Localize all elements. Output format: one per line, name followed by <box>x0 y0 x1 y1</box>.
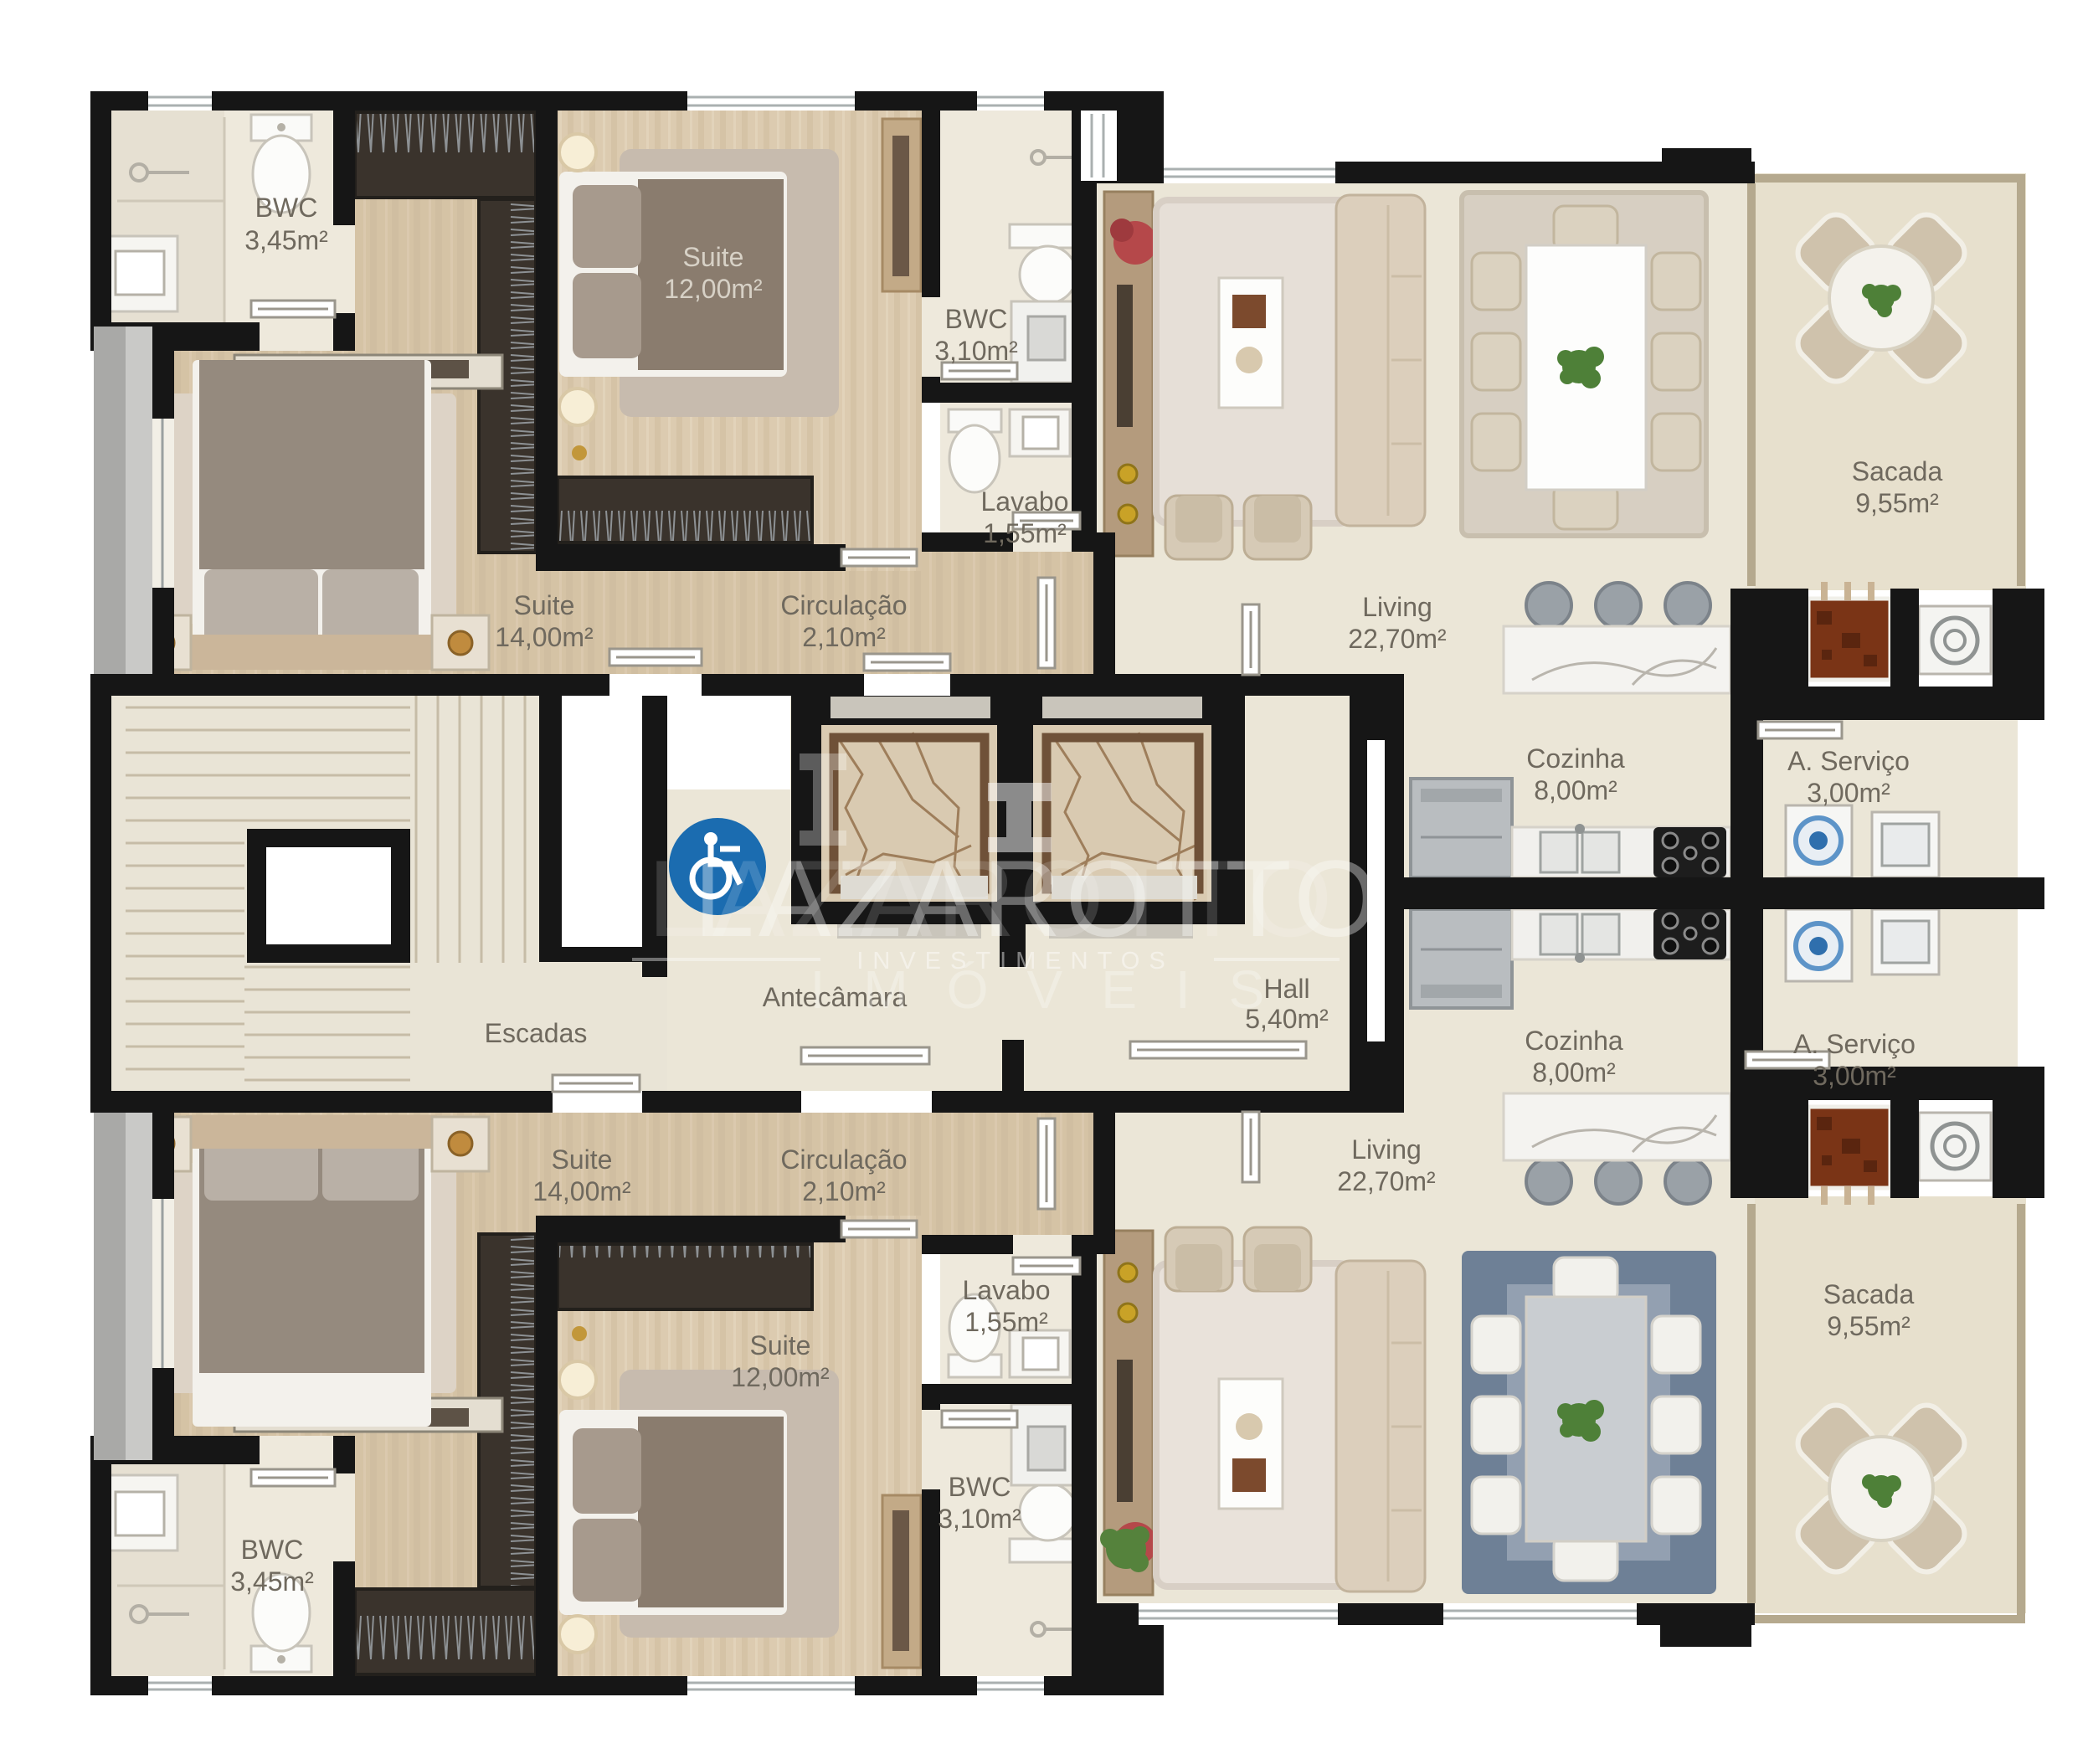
svg-text:Living: Living <box>1362 592 1432 622</box>
svg-text:8,00m²: 8,00m² <box>1532 1057 1616 1088</box>
svg-text:3,45m²: 3,45m² <box>244 225 328 255</box>
svg-text:BWC: BWC <box>949 1472 1011 1502</box>
svg-text:Suite: Suite <box>552 1144 613 1175</box>
svg-text:IMÓVEIS: IMÓVEIS <box>810 959 1304 1020</box>
svg-text:A. Serviço: A. Serviço <box>1787 746 1910 776</box>
svg-text:Circulação: Circulação <box>780 1144 907 1175</box>
svg-text:Lavabo: Lavabo <box>963 1275 1051 1305</box>
svg-text:12,00m²: 12,00m² <box>731 1362 830 1392</box>
svg-text:Suite: Suite <box>750 1330 811 1360</box>
svg-text:12,00m²: 12,00m² <box>664 274 763 304</box>
svg-text:14,00m²: 14,00m² <box>532 1176 631 1206</box>
svg-text:Living: Living <box>1351 1134 1422 1165</box>
svg-text:Escadas: Escadas <box>485 1018 588 1048</box>
svg-text:3,00m²: 3,00m² <box>1813 1061 1896 1091</box>
svg-text:22,70m²: 22,70m² <box>1337 1166 1436 1196</box>
svg-text:A. Serviço: A. Serviço <box>1793 1029 1916 1059</box>
svg-text:22,70m²: 22,70m² <box>1348 624 1447 654</box>
svg-text:Cozinha: Cozinha <box>1525 1026 1623 1056</box>
svg-text:BWC: BWC <box>255 193 318 223</box>
svg-text:Sacada: Sacada <box>1823 1279 1915 1309</box>
svg-text:3,45m²: 3,45m² <box>230 1566 314 1597</box>
svg-text:3,00m²: 3,00m² <box>1807 778 1890 808</box>
svg-text:8,00m²: 8,00m² <box>1534 775 1617 805</box>
svg-text:Cozinha: Cozinha <box>1526 743 1625 774</box>
svg-text:9,55m²: 9,55m² <box>1827 1311 1910 1341</box>
svg-text:2,10m²: 2,10m² <box>802 622 886 652</box>
svg-text:1,55m²: 1,55m² <box>983 518 1067 548</box>
svg-text:14,00m²: 14,00m² <box>495 622 594 652</box>
svg-text:Suite: Suite <box>683 242 744 272</box>
svg-text:2,10m²: 2,10m² <box>802 1176 886 1206</box>
svg-text:Circulação: Circulação <box>780 590 907 620</box>
svg-text:3,10m²: 3,10m² <box>934 336 1018 366</box>
svg-text:1,55m²: 1,55m² <box>964 1307 1048 1337</box>
svg-text:9,55m²: 9,55m² <box>1855 488 1939 518</box>
svg-text:Lavabo: Lavabo <box>981 486 1069 517</box>
svg-text:Sacada: Sacada <box>1852 456 1943 486</box>
svg-text:3,10m²: 3,10m² <box>938 1504 1021 1534</box>
svg-text:BWC: BWC <box>241 1535 304 1565</box>
svg-text:Suite: Suite <box>514 590 575 620</box>
svg-text:LAZAROTTO: LAZAROTTO <box>648 837 1337 959</box>
svg-text:BWC: BWC <box>945 304 1008 334</box>
